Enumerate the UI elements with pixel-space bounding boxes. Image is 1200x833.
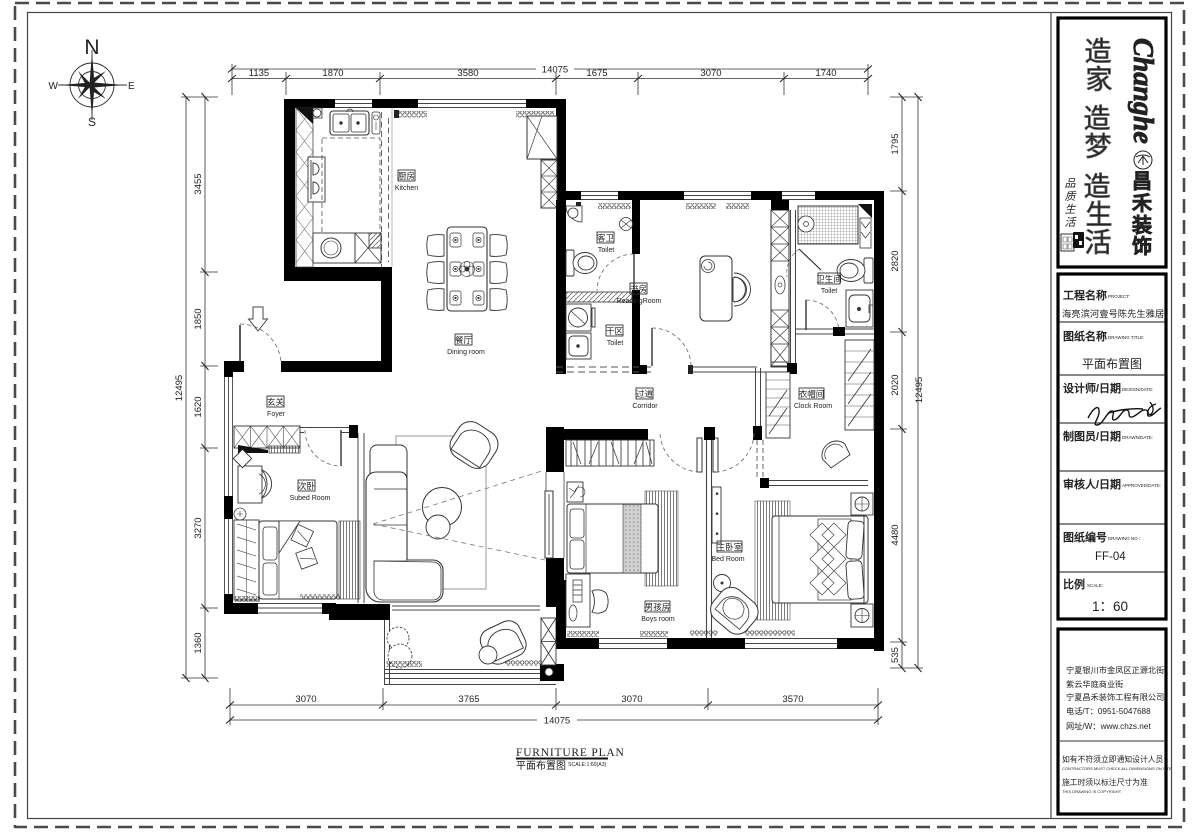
svg-text:SCALE:: SCALE:	[1087, 583, 1103, 588]
svg-text:1740: 1740	[815, 68, 836, 79]
svg-text:APPROVED/DATE:: APPROVED/DATE:	[1122, 483, 1161, 488]
svg-text:1：60: 1：60	[1092, 599, 1128, 614]
svg-text:FF-04: FF-04	[1095, 551, 1126, 563]
svg-text:Bed Room: Bed Room	[711, 556, 744, 563]
svg-text:12495: 12495	[914, 377, 925, 403]
svg-text:Subed Room: Subed Room	[290, 495, 331, 502]
svg-text:2020: 2020	[890, 374, 901, 395]
svg-text:3070: 3070	[621, 694, 642, 705]
svg-text:比例: 比例	[1063, 577, 1085, 591]
svg-text:Toilet: Toilet	[607, 340, 623, 347]
svg-text:宁夏昌禾装饰工程有限公司: 宁夏昌禾装饰工程有限公司	[1066, 692, 1164, 702]
svg-text:1795: 1795	[890, 133, 901, 154]
svg-text:3270: 3270	[193, 517, 204, 538]
svg-text:535: 535	[890, 647, 901, 663]
svg-text:餐厅: 餐厅	[455, 335, 473, 345]
svg-text:Boys room: Boys room	[641, 616, 675, 623]
svg-text:Dining room: Dining room	[447, 349, 485, 356]
svg-text:禾: 禾	[1132, 192, 1152, 215]
svg-text:THIS DRAWING IS COPYRIGHT: THIS DRAWING IS COPYRIGHT	[1062, 789, 1122, 794]
svg-text:DRAWN/DATE:: DRAWN/DATE:	[1122, 435, 1153, 440]
svg-text:DRAWING NO :: DRAWING NO :	[1108, 536, 1140, 541]
svg-text:Corridor: Corridor	[632, 403, 658, 410]
svg-text:14075: 14075	[542, 65, 568, 76]
svg-text:平面布置图: 平面布置图	[516, 760, 566, 772]
svg-text:紫云华庭商业街: 紫云华庭商业街	[1066, 679, 1123, 689]
svg-text:宁夏银川市金凤区正源北街: 宁夏银川市金凤区正源北街	[1066, 665, 1164, 675]
svg-text:品: 品	[1065, 178, 1077, 190]
svg-text:厨房: 厨房	[398, 171, 415, 181]
svg-text:W: W	[49, 81, 59, 92]
svg-text:PROJECT:: PROJECT:	[1108, 294, 1130, 299]
svg-text:施工时须以标注尺寸为准: 施工时须以标注尺寸为准	[1062, 777, 1148, 787]
svg-text:生: 生	[1086, 200, 1113, 230]
svg-text:卫生间: 卫生间	[816, 274, 842, 284]
svg-text:1360: 1360	[193, 632, 204, 653]
svg-text:过道: 过道	[636, 389, 654, 399]
svg-text:电话/T：0951-5047688: 电话/T：0951-5047688	[1066, 706, 1151, 716]
svg-text:14075: 14075	[544, 716, 570, 727]
svg-text:网址/W：www.chzs.net: 网址/W：www.chzs.net	[1066, 721, 1151, 731]
svg-text:制图员/日期: 制图员/日期	[1063, 429, 1121, 443]
svg-text:图纸名称: 图纸名称	[1063, 329, 1107, 343]
svg-text:3070: 3070	[700, 68, 721, 79]
svg-text:Foyer: Foyer	[267, 411, 286, 418]
svg-text:主卧室: 主卧室	[717, 542, 743, 552]
svg-text:2820: 2820	[890, 250, 901, 271]
svg-text:梦: 梦	[1085, 132, 1112, 162]
svg-text:Changhe: Changhe	[1127, 38, 1158, 144]
svg-text:N: N	[84, 36, 99, 59]
svg-text:次卧: 次卧	[298, 481, 316, 491]
svg-text:设计师/日期: 设计师/日期	[1063, 381, 1121, 395]
svg-text:客卫: 客卫	[597, 233, 615, 243]
svg-text:平面布置图: 平面布置图	[1082, 357, 1142, 371]
svg-text:3580: 3580	[457, 68, 478, 79]
svg-text:DESIGN/DATE:: DESIGN/DATE:	[1122, 387, 1153, 392]
svg-text:衣帽间: 衣帽间	[799, 389, 825, 399]
svg-text:SCALE:1:60(A3): SCALE:1:60(A3)	[568, 762, 607, 768]
svg-text:Clock Room: Clock Room	[794, 403, 832, 410]
svg-text:DRAWING TITLE:: DRAWING TITLE:	[1108, 335, 1144, 340]
svg-text:装: 装	[1131, 213, 1152, 237]
svg-text:4480: 4480	[890, 524, 901, 545]
svg-text:1870: 1870	[322, 68, 343, 79]
svg-text:1620: 1620	[193, 396, 204, 417]
svg-text:FURNITURE PLAN: FURNITURE PLAN	[516, 747, 625, 759]
svg-text:饰: 饰	[1132, 234, 1152, 258]
svg-text:干区: 干区	[606, 326, 624, 336]
svg-text:生: 生	[1065, 203, 1077, 216]
svg-text:CONTRACTORS MUST CHECK ALL DIM: CONTRACTORS MUST CHECK ALL DIMENSIONS ON…	[1062, 766, 1172, 771]
svg-text:3765: 3765	[458, 694, 479, 705]
svg-text:3455: 3455	[193, 173, 204, 194]
svg-text:造: 造	[1084, 104, 1111, 134]
svg-text:1850: 1850	[193, 308, 204, 329]
svg-text:男孩房: 男孩房	[645, 602, 671, 612]
svg-text:审核人/日期: 审核人/日期	[1063, 477, 1121, 491]
svg-text:ReadingRoom: ReadingRoom	[617, 298, 662, 305]
svg-text:海亮滨河壹号陈先生雅居: 海亮滨河壹号陈先生雅居	[1062, 308, 1164, 319]
svg-text:工程名称: 工程名称	[1063, 288, 1107, 302]
svg-text:1675: 1675	[586, 68, 607, 79]
svg-text:Toilet: Toilet	[821, 288, 837, 295]
svg-text:Toilet: Toilet	[598, 247, 614, 254]
svg-text:家: 家	[1086, 65, 1113, 95]
svg-text:活: 活	[1085, 228, 1112, 258]
svg-text:12495: 12495	[174, 375, 185, 401]
svg-text:1135: 1135	[249, 68, 269, 79]
svg-text:Kitchen: Kitchen	[395, 185, 418, 192]
svg-text:3570: 3570	[782, 694, 803, 705]
svg-text:造: 造	[1085, 37, 1112, 67]
svg-text:3070: 3070	[295, 694, 316, 705]
svg-text:造: 造	[1084, 172, 1111, 202]
svg-text:书房: 书房	[630, 284, 647, 294]
svg-text:E: E	[128, 81, 135, 92]
svg-text:S: S	[88, 115, 96, 129]
svg-text:玄关: 玄关	[267, 397, 285, 407]
svg-text:昌: 昌	[1132, 170, 1152, 193]
svg-text:图纸编号: 图纸编号	[1063, 530, 1107, 544]
svg-text:如有不符须立即通知设计人员: 如有不符须立即通知设计人员	[1062, 754, 1164, 764]
